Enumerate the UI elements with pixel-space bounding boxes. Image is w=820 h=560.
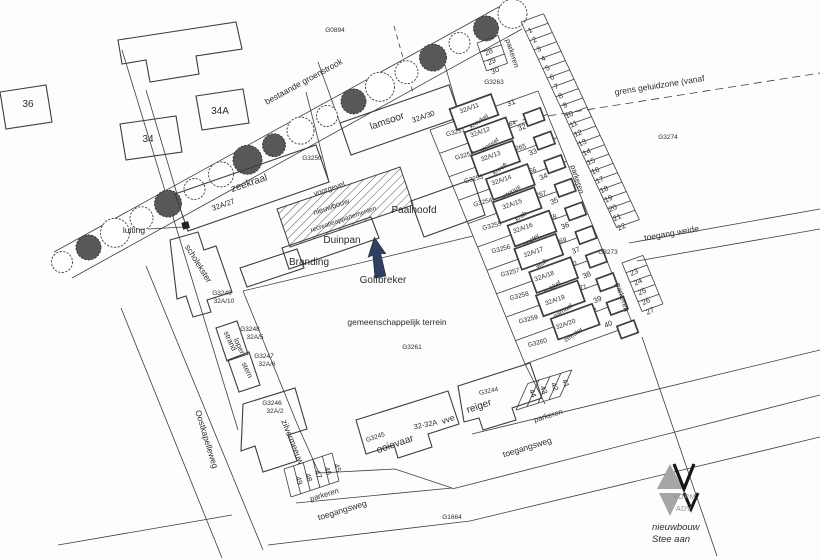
house-34a: 34A: [211, 106, 229, 117]
garden-shed: [565, 202, 586, 220]
site-plan-page: G325132A/11kreukelG326431G325232A/12moss…: [0, 0, 820, 560]
parking-stall-number: 41: [560, 378, 571, 389]
garden-shed-outline: [555, 179, 576, 197]
parcel-g1664: G1664: [442, 514, 462, 521]
garden-shed: [534, 131, 555, 149]
toegangsweg-right-label: toegangsweg: [501, 435, 553, 459]
duinpan-label: Duinpan: [323, 235, 360, 246]
garden-shed-outline: [565, 202, 586, 220]
tree-symbol: [366, 72, 395, 101]
row-stall-number: 40: [603, 318, 614, 329]
parking-stall-number: 3: [535, 44, 543, 54]
luiting-marker: [181, 221, 190, 230]
parking-strip-edge: [477, 43, 487, 71]
garden-shed: [523, 108, 544, 126]
parking-stall-number: 1: [526, 25, 534, 35]
logo-caption-line1: nieuwbouw: [652, 522, 701, 533]
garden-shed-outline: [523, 108, 544, 126]
garden-shed-outline: [544, 155, 565, 173]
tree-symbol: [420, 44, 447, 71]
tree-symbol: [498, 0, 527, 28]
parking-stall-number: 8: [557, 91, 565, 101]
tree-symbol: [287, 117, 314, 144]
tree-symbol: [76, 235, 101, 260]
stern-number: 32A/6: [259, 361, 276, 368]
row-plot-label: G3260: [527, 337, 548, 349]
parcel-g3274: G3274: [658, 134, 678, 141]
garden-shed: [596, 273, 617, 291]
terrein-bottom-edge: [319, 469, 452, 488]
zilvermeeuw-name: zilvermeeuw: [279, 418, 306, 466]
row-plot-label: G3258: [509, 290, 530, 302]
parking-stall-number: 9: [561, 100, 569, 110]
site-plan-map: G325132A/11kreukelG326431G325232A/12moss…: [0, 0, 820, 560]
parking-stall-divider: [284, 469, 291, 497]
tree-symbol: [449, 33, 470, 54]
vve-label: vve: [440, 412, 456, 426]
stern-plot: G3247: [254, 353, 274, 360]
tree-symbol: [233, 145, 262, 174]
parkeren-label-south: parkeren: [533, 407, 564, 424]
access-road-east-edge-2: [452, 395, 820, 489]
row-stall-number: 38: [581, 269, 592, 280]
annotation-graphics: [148, 221, 389, 278]
zilvermeeuw-plot: G3246: [262, 400, 282, 407]
row-stall-number: 37: [570, 245, 581, 256]
garden-shed: [575, 226, 596, 244]
logo-brand-line1: VORM: [673, 494, 696, 501]
parcel-g0894: G0894: [325, 27, 345, 34]
row-stall-number: 33: [527, 146, 538, 157]
garden-shed-outline: [534, 131, 555, 149]
parking-stall-divider: [622, 255, 643, 263]
scholekster-number: 32A/10: [214, 298, 235, 305]
garden-shed-outline: [596, 273, 617, 291]
zilvermeeuw-number: 32A/2: [267, 408, 284, 415]
strandloper-number: 32A/5: [247, 334, 264, 341]
parking-stall-number: 22: [616, 221, 627, 233]
toegangsweg-left-label: toegangsweg: [316, 498, 368, 522]
garden-shed: [555, 179, 576, 197]
parcel-g3261: G3261: [402, 344, 422, 351]
row-houses-layer: G325132A/11kreukelG326431G325232A/12moss…: [430, 91, 638, 364]
luiting-label: luiting: [123, 225, 145, 235]
reiger-name: reiger: [465, 397, 493, 416]
logo: VORM ADV nieuwbouw Stee aan: [652, 464, 701, 545]
bottom-left-line: [58, 515, 232, 545]
logo-caption-line2: Stee aan: [652, 534, 690, 545]
row-plot-label: G3255: [482, 220, 503, 232]
tree-symbol: [263, 134, 286, 157]
tree-symbol: [341, 89, 366, 114]
logo-brand-line2: ADV: [676, 506, 692, 513]
scholekster-name: scholekster: [183, 243, 214, 285]
reiger-plot: G3244: [478, 386, 499, 397]
golfbreker-label: Golfbreker: [360, 275, 407, 286]
house-36: 36: [22, 99, 34, 110]
garden-shed: [617, 320, 638, 338]
parcel-g3263: G3263: [484, 79, 504, 86]
zeekraal-name: zeekraal: [230, 172, 269, 195]
tree-symbol: [474, 16, 499, 41]
paalhoofd-label: Paalhoofd: [391, 205, 436, 216]
tree-symbol: [155, 190, 182, 217]
garden-shed-outline: [575, 226, 596, 244]
parking-strip-edge: [516, 396, 560, 410]
tree-symbol: [52, 252, 73, 273]
vve-range: 32-32A: [413, 418, 439, 432]
garden-shed-outline: [617, 320, 638, 338]
row-stall-number: 39: [592, 294, 603, 305]
parking-stall-number: 4: [539, 53, 547, 63]
garden-shed: [544, 155, 565, 173]
house-34: 34: [142, 134, 154, 145]
scholekster-plot: G3249: [212, 290, 232, 297]
toegang-weide-label: toegang weide: [643, 223, 699, 242]
row-plot-label: G3259: [518, 314, 539, 326]
parking-stall-number: 7: [552, 82, 560, 92]
row-stall-number: 31: [506, 97, 517, 108]
linework: [58, 26, 820, 558]
luiting-leader-line: [148, 227, 184, 229]
row-stall-number: 36: [560, 220, 571, 231]
oostkapelleweg-edge-1: [146, 266, 263, 550]
access-road-south-edge: [268, 437, 820, 545]
parking-stall-number: 49: [294, 475, 305, 486]
parcel-g3273: G3273: [598, 249, 618, 256]
parcel-g3250: G3250: [302, 155, 322, 162]
oostkapelleweg-label: Oostkapelleweg: [193, 409, 220, 470]
row-plot-label: G3256: [491, 244, 512, 256]
row-plot-label: G3254: [473, 197, 494, 209]
parking-stall-number: 42: [549, 381, 560, 392]
parking-stall-number: 2: [531, 35, 539, 45]
parking-stall-number: 44: [527, 388, 538, 399]
row-plot-label: G3257: [500, 267, 521, 279]
tree-symbol: [184, 179, 205, 200]
branding-building: [240, 249, 304, 287]
row-stall-number: 32: [516, 122, 527, 133]
existing-building-top: [118, 22, 242, 82]
parking-stall-number: 6: [548, 72, 556, 82]
parking-stall-number: 5: [544, 63, 552, 73]
terrein-label: gemeenschappelijk terrein: [347, 317, 446, 327]
strandloper-plot: G3248: [240, 326, 260, 333]
lamsoor-number: 32A/30: [410, 109, 435, 125]
row-plot-label: G3251: [445, 127, 466, 139]
tree-symbol: [317, 106, 338, 127]
branding-label: Branding: [289, 257, 329, 268]
parking-stall-divider: [516, 384, 528, 411]
lamsoor-name: lamsoor: [369, 110, 407, 132]
tree-symbol: [395, 61, 418, 84]
